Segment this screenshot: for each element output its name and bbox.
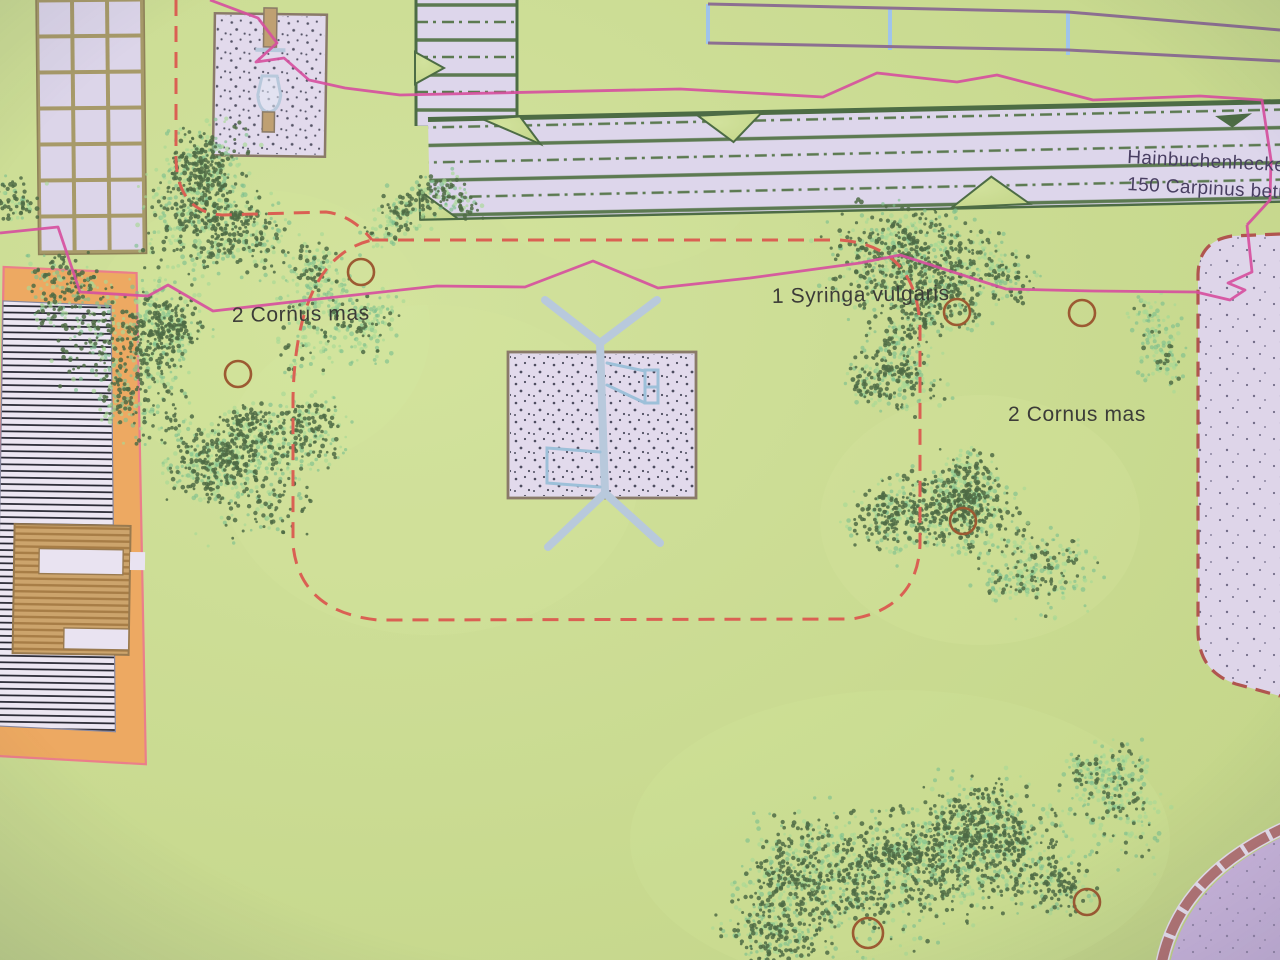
photo-vignette [0, 0, 1280, 960]
landscape-plan-photo: 2 Cornus mas 1 Syringa vulgaris 2 Cornus… [0, 0, 1280, 960]
